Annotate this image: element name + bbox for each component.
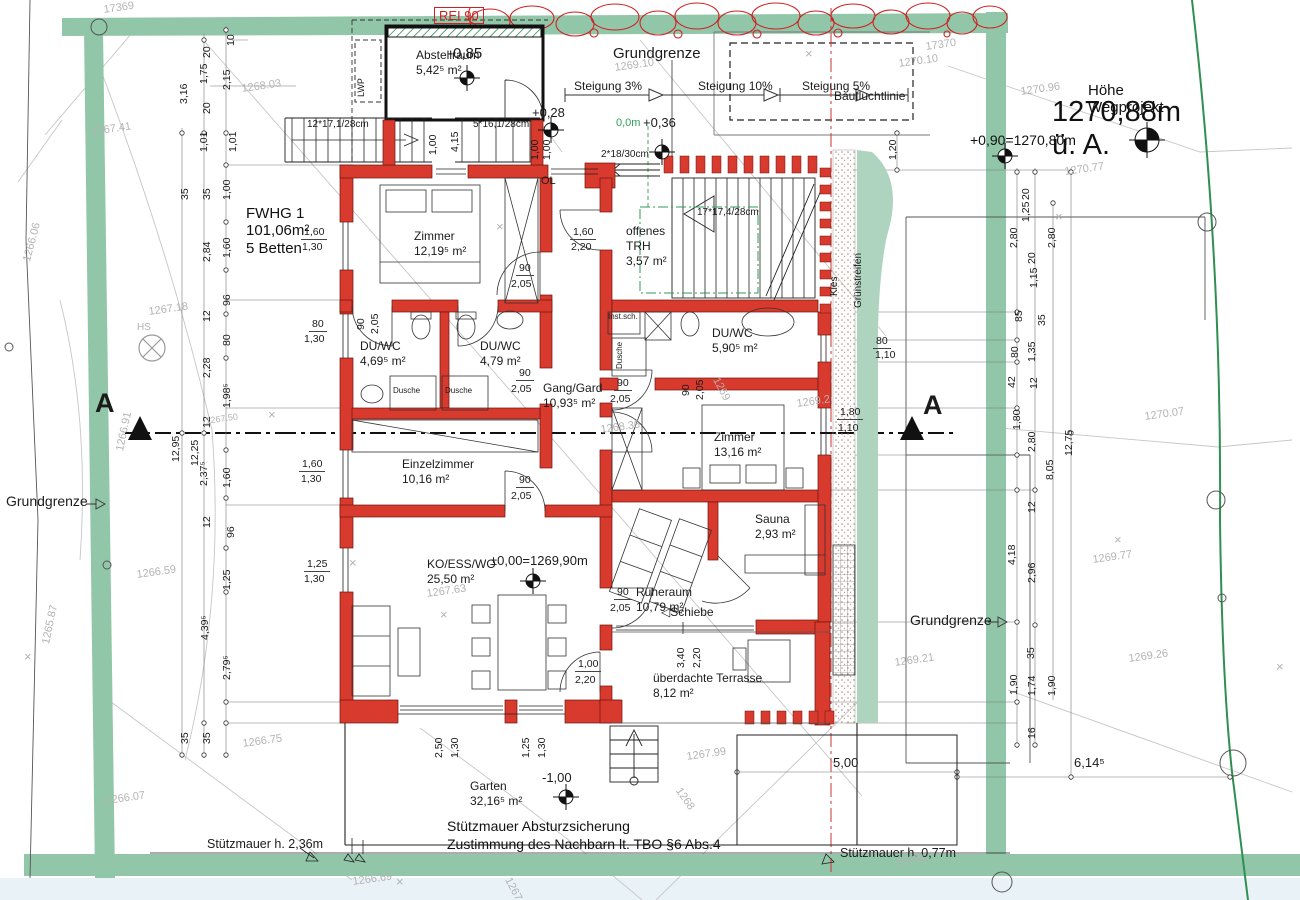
retaining-wall-note: Stützmauer Absturzsicherung Zustimmung d… bbox=[447, 817, 721, 853]
sink bbox=[361, 385, 383, 403]
sauna-bench bbox=[745, 505, 825, 575]
wc bbox=[681, 312, 699, 336]
gruenstreifen-strip bbox=[857, 150, 893, 723]
baufluchtlinie-rect bbox=[730, 43, 913, 120]
bed bbox=[702, 405, 784, 490]
lounger bbox=[609, 509, 671, 603]
hoehe-wegprojekt-value: 1270,88m ü. A. bbox=[1052, 96, 1181, 162]
apartment-area: 101,06m² bbox=[246, 222, 309, 239]
lounger bbox=[649, 519, 711, 613]
note-line-1: Stützmauer Absturzsicherung bbox=[447, 817, 721, 835]
steigung-line bbox=[565, 60, 908, 158]
terrace-table bbox=[748, 640, 790, 682]
sofa bbox=[352, 606, 390, 696]
inst-schacht bbox=[608, 312, 640, 334]
trh-dashdot-rect bbox=[640, 207, 758, 293]
annex-abstellraum bbox=[352, 20, 548, 162]
section-marker-right bbox=[900, 416, 924, 440]
parking-box bbox=[737, 735, 957, 845]
apartment-name: FWHG 1 bbox=[246, 205, 309, 222]
stairs bbox=[285, 118, 822, 785]
bottom-water-strip bbox=[0, 878, 1300, 900]
building-walls bbox=[340, 120, 831, 725]
apartment-info: FWHG 1 101,06m² 5 Betten bbox=[246, 205, 309, 257]
shower bbox=[390, 376, 436, 410]
dining-table bbox=[498, 595, 546, 690]
floorplan-canvas: GrundgrenzeSteigung 3%Steigung 10%Steigu… bbox=[0, 0, 1300, 900]
sink bbox=[497, 311, 523, 329]
hs-symbol bbox=[139, 335, 165, 361]
apartment-beds: 5 Betten bbox=[246, 240, 309, 257]
lwp-box bbox=[355, 40, 381, 102]
coffee-table bbox=[398, 628, 420, 676]
grid-window bbox=[833, 545, 855, 675]
bed-double bbox=[380, 185, 480, 283]
level-marker-symbol bbox=[553, 784, 579, 810]
level-symbols bbox=[454, 65, 1165, 810]
weg-level: +0,90=1270,80m bbox=[970, 132, 1076, 148]
note-line-2: Zustimmung des Nachbarn lt. TBO §6 Abs.4 bbox=[447, 835, 721, 853]
section-marker-left bbox=[128, 416, 152, 440]
level-marker-symbol bbox=[520, 568, 546, 594]
